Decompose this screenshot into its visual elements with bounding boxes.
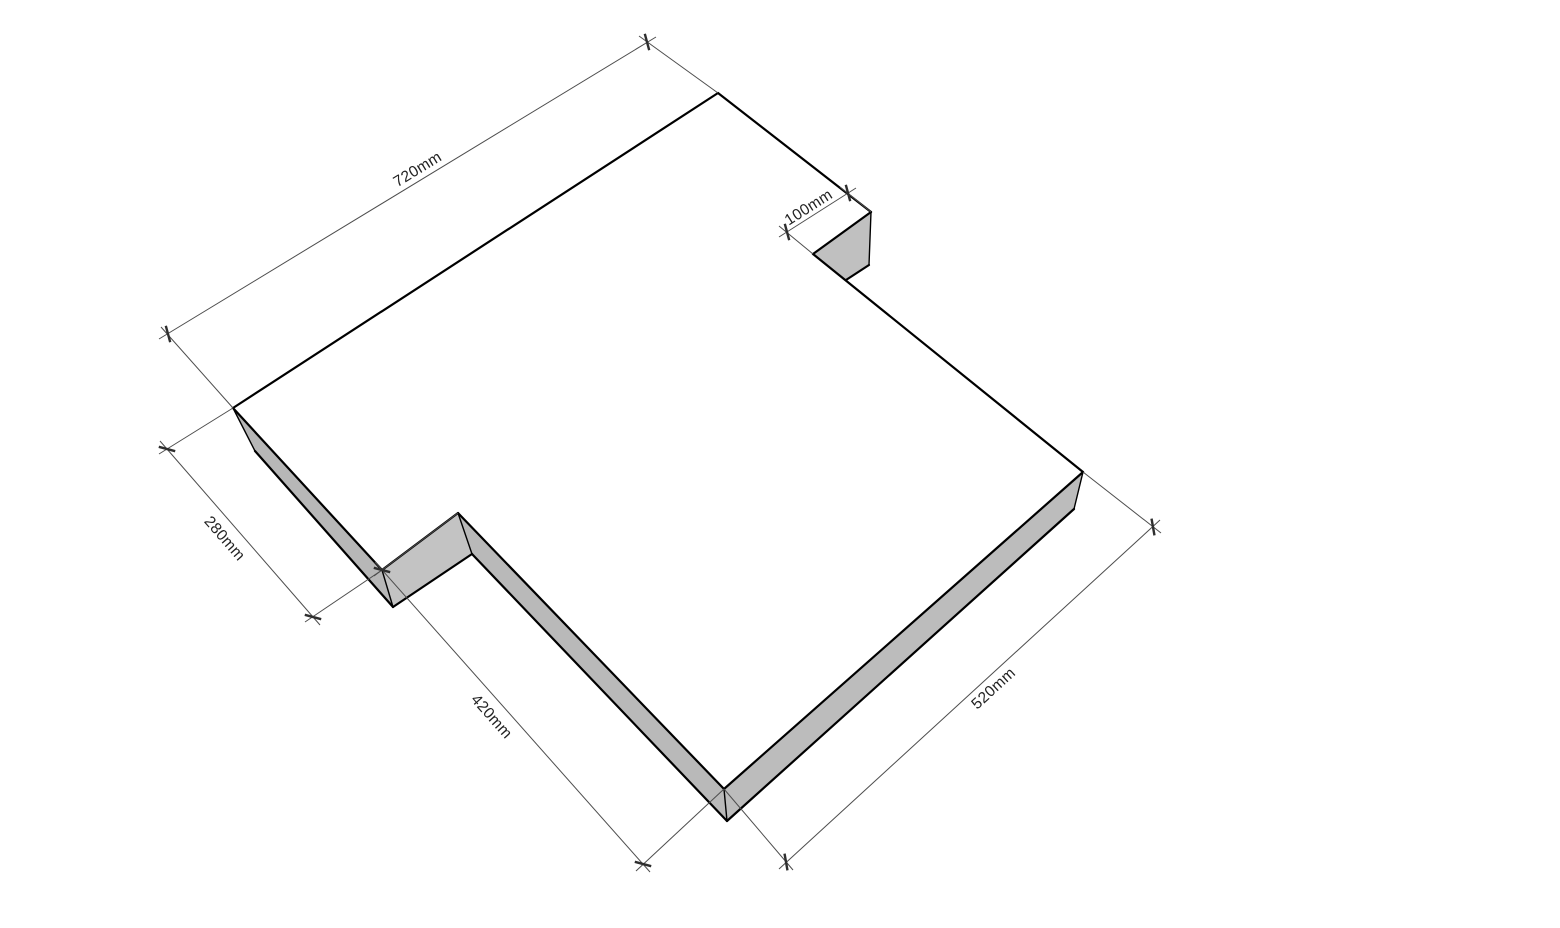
dimension-tick [1152,519,1155,536]
dimension-tick [305,615,321,619]
model-faces[interactable] [233,93,1083,821]
dimension-tick [635,862,651,866]
dimension-label[interactable]: 280mm [200,513,248,564]
dimension-extension-line [305,570,382,622]
model-viewport[interactable]: 720mm100mm280mm420mm520mm [0,0,1560,928]
dimension-label[interactable]: 420mm [467,691,515,742]
dimension-extension-line [636,789,724,871]
cad-application-window: 720mm100mm280mm420mm520mm [0,0,1560,928]
dimension-tick [785,854,788,871]
dimension-extension-line [1083,472,1161,533]
dimension-extension-line [639,36,718,93]
dimension-tick [159,447,175,451]
dimension-extension-line [161,327,233,408]
dimension-extension-line [724,789,793,870]
dimension-extension-line [159,408,233,454]
top-face[interactable] [233,93,1083,789]
